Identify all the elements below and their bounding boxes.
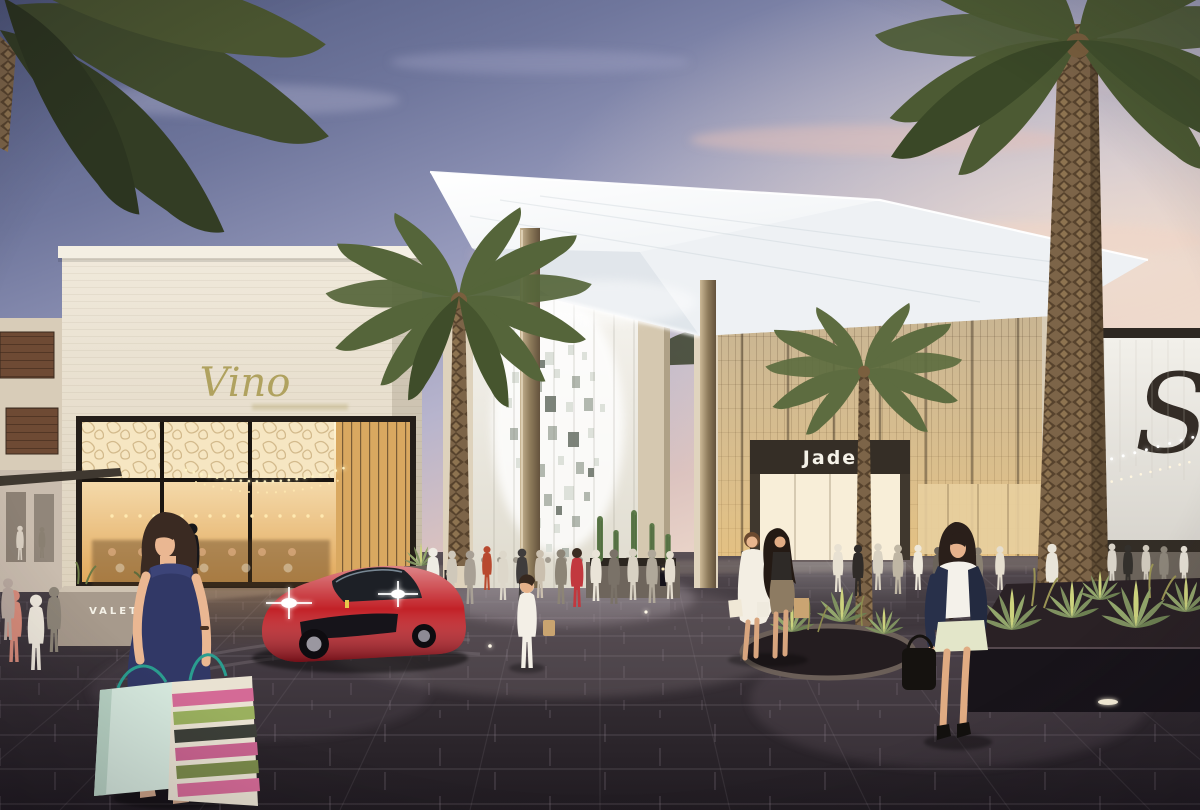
mall-dusk-rendering: Vino Jade S: [0, 0, 1200, 810]
vignette: [0, 0, 1200, 810]
scene-canvas: Vino Jade S: [0, 0, 1200, 810]
